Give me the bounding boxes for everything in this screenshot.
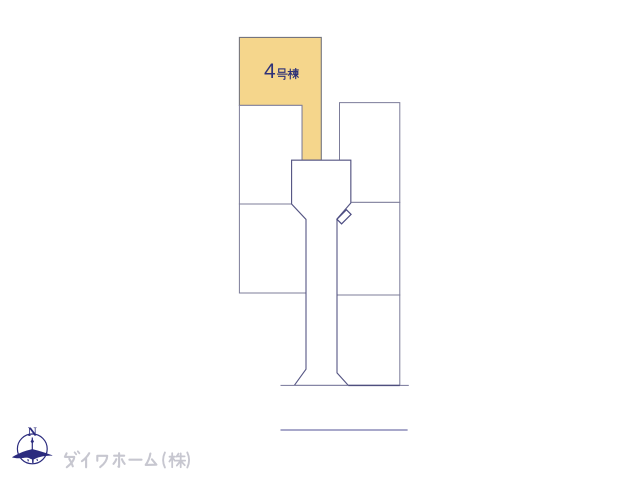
svg-text:4: 4 <box>264 60 276 83</box>
svg-text:N: N <box>28 425 37 439</box>
